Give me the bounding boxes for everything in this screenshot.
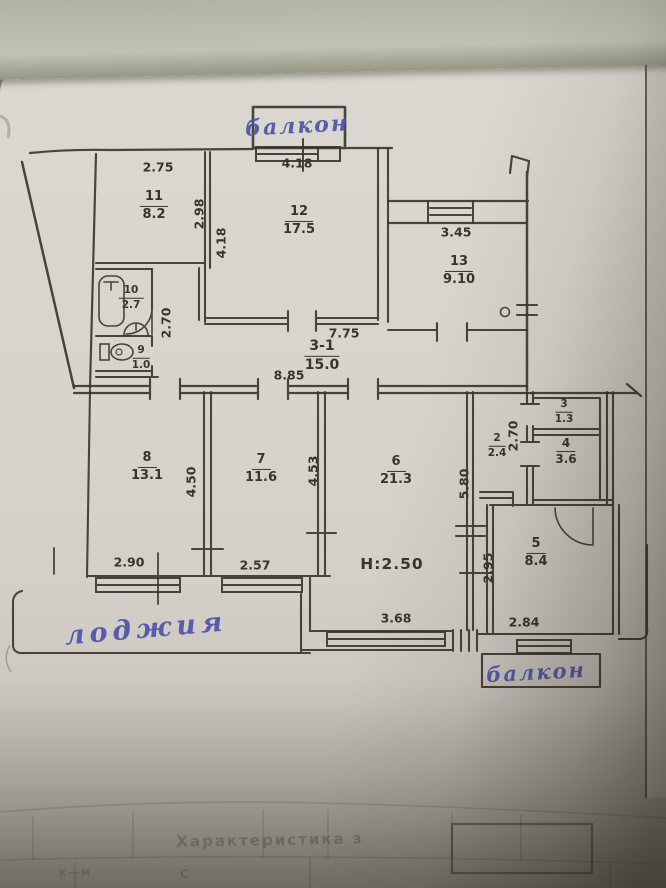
room-number: 3 xyxy=(555,399,572,413)
room-number: 10 xyxy=(119,285,144,299)
room-label-13: 13 9.10 xyxy=(443,255,475,287)
room-number: 3-1 xyxy=(304,339,339,357)
room-area: 17.5 xyxy=(283,222,315,238)
room-number: 4 xyxy=(557,437,575,452)
room-area: 2.7 xyxy=(119,299,144,312)
photo-of-floorplan-sheet: { "colors": { "paper": "#d8d4cd", "table… xyxy=(0,0,666,888)
room-area: 8.4 xyxy=(524,554,547,570)
dim-kitchen-height: 2.95 xyxy=(481,553,496,584)
dim-room8-width: 2.90 xyxy=(114,555,145,570)
dim-bath-height: 2.70 xyxy=(159,308,174,339)
bleed-header-text: Характеристика з xyxy=(176,829,363,850)
dim-hall-top: 7.75 xyxy=(329,326,360,341)
dim-room13-width: 3.45 xyxy=(441,225,472,240)
room-label-5: 5 8.4 xyxy=(524,537,547,569)
bleed-row-right: С xyxy=(180,867,190,881)
ceiling-height-note: H:2.50 xyxy=(360,555,423,573)
room-number: 12 xyxy=(285,205,313,222)
room-number: 13 xyxy=(445,255,473,272)
room-number: 11 xyxy=(140,190,168,207)
dim-room11-width: 2.75 xyxy=(143,160,174,175)
dim-room12-width: 4.18 xyxy=(282,156,313,171)
room-area: 1.0 xyxy=(132,359,151,372)
dim-hall2-height: 2.70 xyxy=(506,421,521,452)
dim-room6-height: 5.80 xyxy=(457,469,472,500)
dim-room12-height: 4.18 xyxy=(214,228,229,259)
room-area: 3.6 xyxy=(555,453,576,467)
room-number: 2 xyxy=(488,433,505,447)
room-label-9: 9 1.0 xyxy=(132,345,151,372)
room-label-2: 2 2.4 xyxy=(488,433,507,460)
room-number: 7 xyxy=(251,453,270,470)
room-area: 9.10 xyxy=(443,272,475,288)
bleed-row-left: к—м xyxy=(58,865,91,880)
balcony-top-handwriting: балкон xyxy=(244,110,349,141)
room-label-7: 7 11.6 xyxy=(245,453,277,485)
dim-kitchen-width: 2.84 xyxy=(509,615,540,630)
room-label-3: 3 1.3 xyxy=(555,399,574,426)
dim-room6-width: 3.68 xyxy=(381,611,412,626)
room-area: 2.4 xyxy=(488,447,507,460)
dim-room7-height: 4.53 xyxy=(306,456,321,487)
room-area: 11.6 xyxy=(245,470,277,486)
room-label-11: 11 8.2 xyxy=(140,190,168,222)
room-area: 8.2 xyxy=(140,207,168,223)
room-label-12: 12 17.5 xyxy=(283,205,315,237)
room-number: 6 xyxy=(386,455,405,472)
dim-hall-bottom: 8.85 xyxy=(274,368,305,383)
room-label-10: 10 2.7 xyxy=(119,285,144,312)
room-area: 1.3 xyxy=(555,413,574,426)
room-area: 13.1 xyxy=(131,468,163,484)
room-label-6: 6 21.3 xyxy=(380,455,412,487)
dim-room8-height: 4.50 xyxy=(184,467,199,498)
room-number: 8 xyxy=(137,451,156,468)
room-number: 5 xyxy=(526,537,545,554)
room-area: 15.0 xyxy=(304,357,339,374)
room-area: 21.3 xyxy=(380,472,412,488)
dim-room7-width: 2.57 xyxy=(240,558,271,573)
room-label-8: 8 13.1 xyxy=(131,451,163,483)
balcony-bottom-handwriting: балкон xyxy=(486,657,587,687)
loggia-handwriting: лоджия xyxy=(63,606,228,651)
dim-room11-height: 2.98 xyxy=(192,199,207,230)
label-layer: 11 8.2 12 17.5 13 9.10 10 2.7 9 1.0 3-1 … xyxy=(0,0,666,888)
room-label-hall-3-1: 3-1 15.0 xyxy=(304,339,339,373)
room-label-4: 4 3.6 xyxy=(555,437,576,467)
room-number: 9 xyxy=(132,345,149,359)
